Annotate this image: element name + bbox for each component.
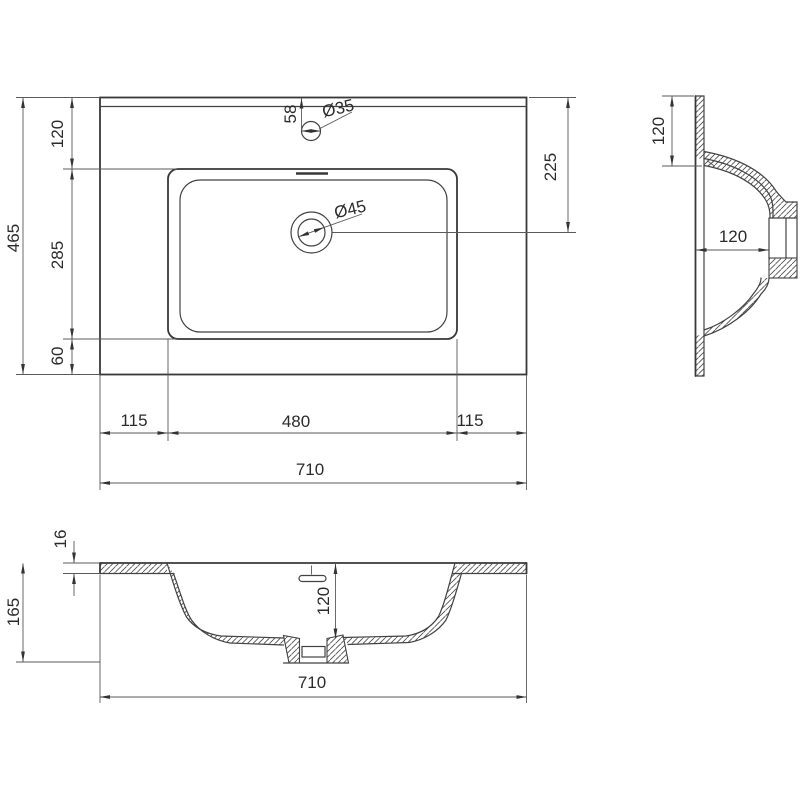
- side-section-view: 120 120: [649, 96, 797, 376]
- side-bowl-lower-wall: [704, 278, 769, 336]
- plan-counter-outline: [100, 98, 527, 375]
- bowl-rim-outline: [168, 169, 457, 339]
- dim-plan-bowl-to-front: 60: [48, 347, 67, 366]
- dim-plan-width-total: 710: [296, 460, 324, 479]
- front-drain-opening: [302, 647, 325, 658]
- dim-front-bowl-inner-depth: 120: [314, 587, 333, 615]
- dim-front-rim-thickness: 16: [51, 530, 70, 549]
- front-drain-boss-left: [284, 636, 300, 664]
- dim-plan-right-to-bowl: 115: [456, 411, 483, 430]
- front-overflow-slot: [299, 576, 326, 582]
- dim-plan-depth-total: 465: [4, 224, 23, 252]
- dim-side-back-to-bowl: 120: [649, 117, 668, 145]
- dim-plan-faucet-from-back: 58: [281, 105, 300, 124]
- side-drain-boss: [769, 258, 797, 278]
- front-section-view: 16 165 120 710: [4, 530, 527, 703]
- dim-plan-bowl-depth: 285: [48, 241, 67, 269]
- washbasin-drawing: 465 120 285 60 58 225 Ø35 Ø45 115 480 11…: [0, 0, 800, 800]
- plan-view: 465 120 285 60 58 225 Ø35 Ø45 115 480 11…: [4, 96, 576, 490]
- front-dimension-lines: [23, 541, 527, 697]
- dim-plan-drain-from-back: 225: [541, 153, 560, 181]
- technical-drawing-page: 465 120 285 60 58 225 Ø35 Ø45 115 480 11…: [0, 0, 800, 800]
- dim-front-width-total: 710: [298, 673, 326, 692]
- dim-plan-bowl-width: 480: [282, 412, 310, 431]
- dim-plan-back-to-bowl: 120: [48, 120, 67, 148]
- dim-side-bowl-inner-depth: 120: [719, 227, 747, 246]
- dim-faucet-hole-dia: Ø35: [320, 96, 356, 122]
- dim-plan-left-to-bowl: 115: [120, 411, 147, 430]
- dim-drain-hole-dia: Ø45: [332, 197, 368, 223]
- dim-front-height-total: 165: [4, 598, 23, 626]
- bowl-bottom-outline: [180, 180, 447, 332]
